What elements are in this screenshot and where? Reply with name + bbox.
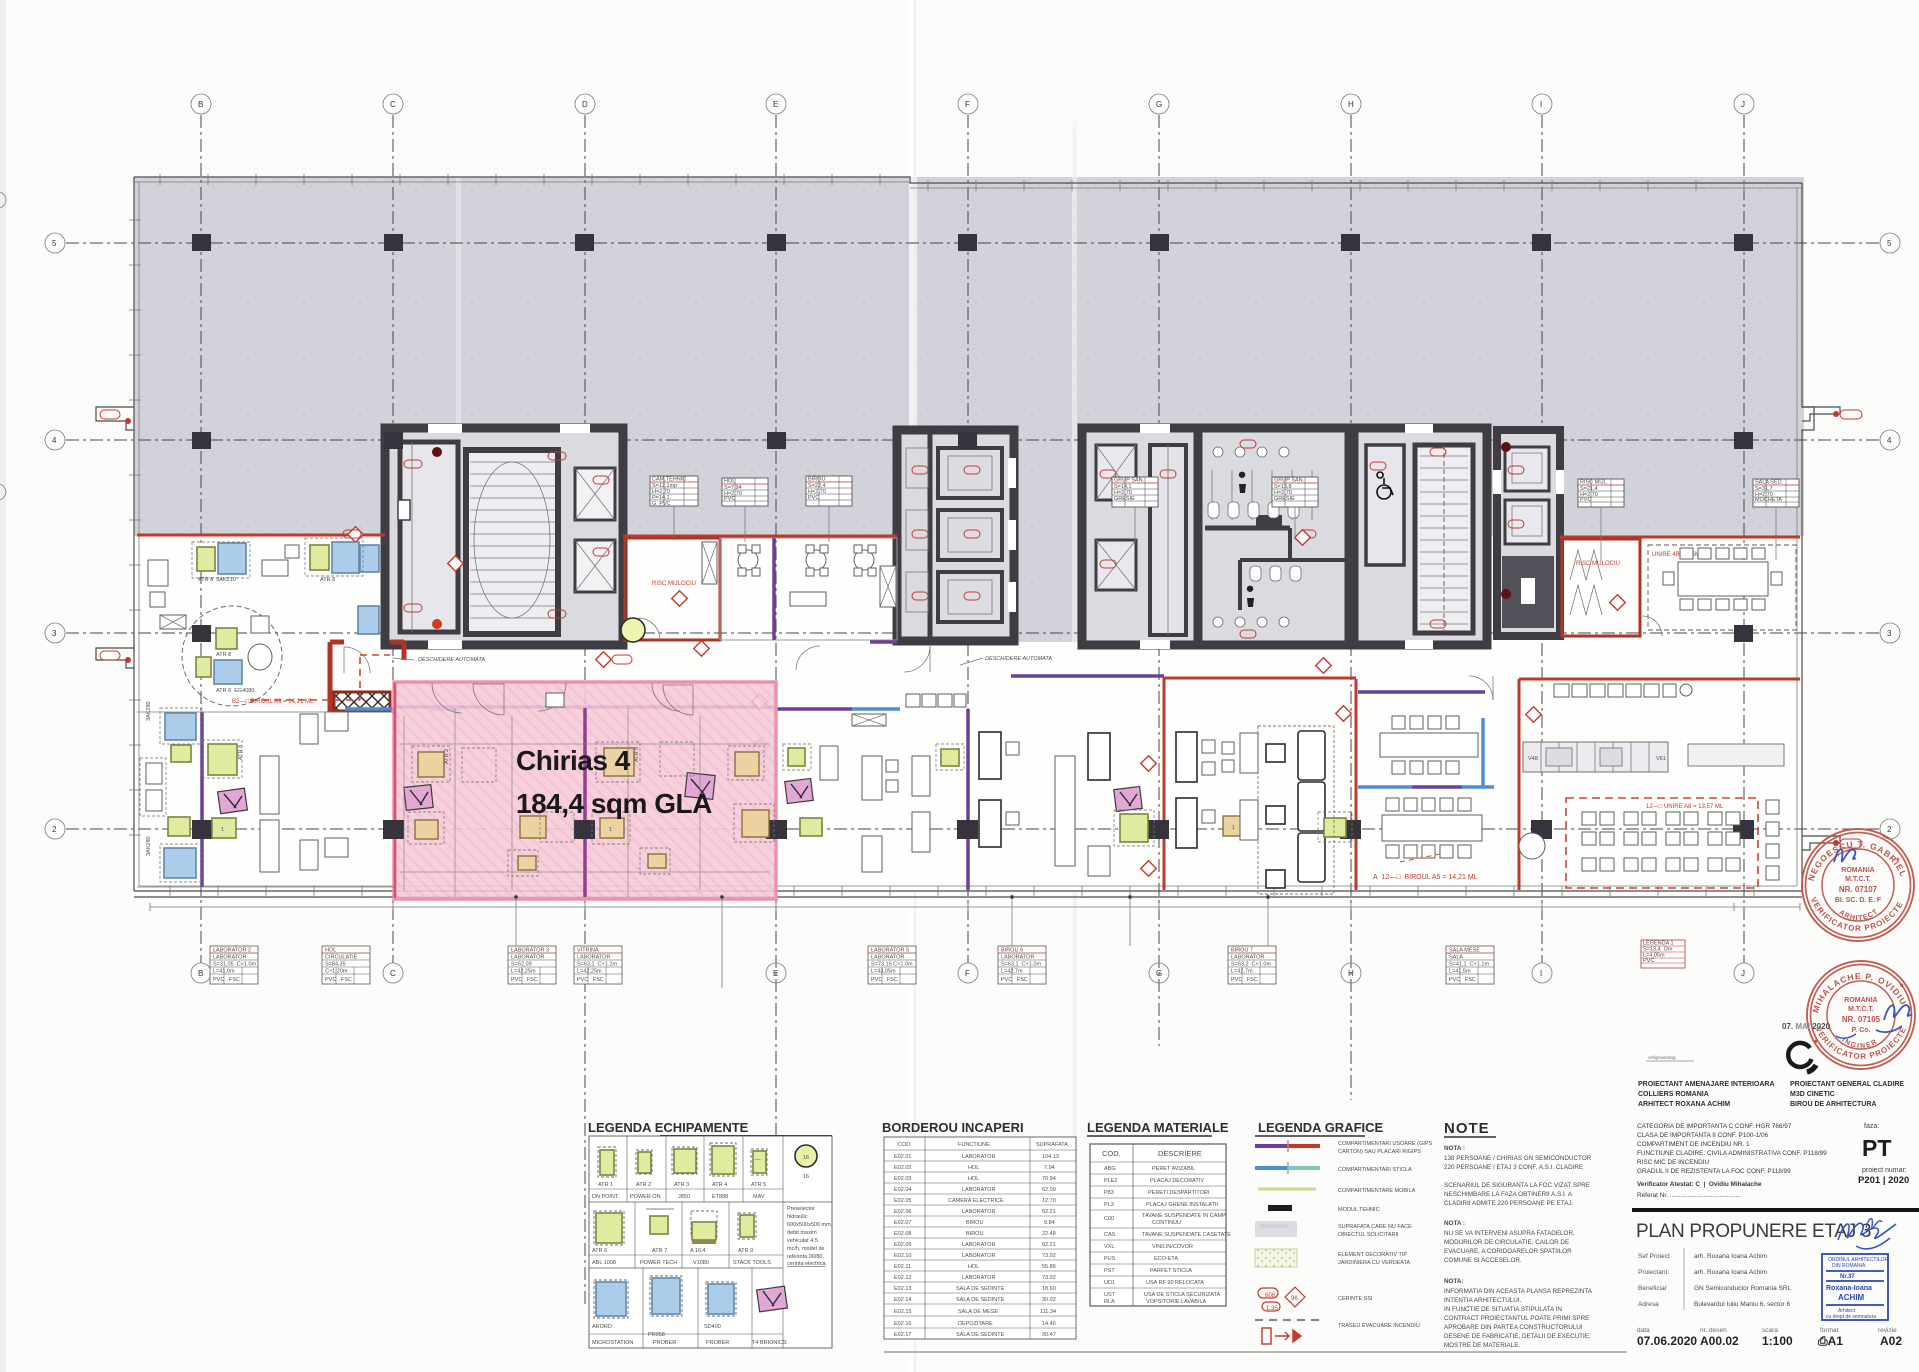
svg-text:NOTE: NOTE bbox=[1444, 1120, 1490, 1137]
svg-text:30.02: 30.02 bbox=[1042, 1297, 1056, 1303]
svg-text:FUNCTIUNE: FUNCTIUNE bbox=[958, 1142, 990, 1148]
svg-text:SALA DE SEDINTE: SALA DE SEDINTE bbox=[956, 1286, 1005, 1292]
svg-text:SCENARIUL DE SIGURANTA LA FOC: SCENARIUL DE SIGURANTA LA FOC VIZAT SPRE bbox=[1444, 1182, 1590, 1189]
svg-text:B: B bbox=[198, 969, 203, 978]
svg-text:MOSTRE DE MATERIALE.: MOSTRE DE MATERIALE. bbox=[1444, 1342, 1520, 1349]
svg-text:INTENTIA ARHITECTULUI.: INTENTIA ARHITECTULUI. bbox=[1444, 1297, 1522, 1304]
svg-text:USA DE STICLA SECURIZATA: USA DE STICLA SECURIZATA bbox=[1144, 1292, 1221, 1298]
svg-text:PROIECTANT AMENAJARE INTERIOAR: PROIECTANT AMENAJARE INTERIOARA bbox=[1638, 1081, 1775, 1088]
svg-text:7.94: 7.94 bbox=[1044, 1165, 1055, 1171]
svg-text:LABORATOR: LABORATOR bbox=[962, 1209, 995, 1215]
svg-text:PVC FSC: PVC FSC bbox=[1449, 977, 1476, 983]
svg-text:debit maxim: debit maxim bbox=[787, 1230, 817, 1236]
svg-text:TRASEU EVACUARE INCENDIU: TRASEU EVACUARE INCENDIU bbox=[1338, 1323, 1420, 1329]
svg-text:PVC FSC: PVC FSC bbox=[213, 977, 240, 983]
svg-text:GRUP SAN.: GRUP SAN. bbox=[1274, 478, 1305, 484]
svg-text:INFORMATIA DIN ACEASTA PLANSA: INFORMATIA DIN ACEASTA PLANSA REPREZINTA bbox=[1444, 1288, 1593, 1295]
svg-text:*: * bbox=[1900, 982, 1904, 992]
svg-text:600x500x500 mm,: 600x500x500 mm, bbox=[787, 1222, 833, 1228]
svg-text:ARORD: ARORD bbox=[592, 1324, 612, 1330]
svg-text:TAVANE SUSPENDATE IN CAMP: TAVANE SUSPENDATE IN CAMP bbox=[1142, 1213, 1226, 1219]
svg-text:PVC: PVC bbox=[808, 495, 819, 501]
svg-text:H: H bbox=[1348, 969, 1354, 978]
svg-text:C: C bbox=[390, 100, 396, 109]
svg-text:ATR 2: ATR 2 bbox=[444, 749, 450, 764]
svg-text:S=63,2 C×1.0m: S=63,2 C×1.0m bbox=[1231, 962, 1271, 968]
svg-text:COD.: COD. bbox=[1102, 1149, 1121, 1158]
svg-text:UST: UST bbox=[1104, 1292, 1116, 1298]
svg-text:E: E bbox=[773, 969, 778, 978]
svg-text:HOL: HOL bbox=[325, 948, 336, 954]
svg-text:MAV: MAV bbox=[753, 1194, 765, 1200]
svg-text:COLLIERS ROMANIA: COLLIERS ROMANIA bbox=[1638, 1091, 1709, 1098]
svg-text:1: 1 bbox=[221, 827, 224, 833]
svg-text:LABORATOR: LABORATOR bbox=[962, 1242, 995, 1248]
svg-text:MICROSTATION: MICROSTATION bbox=[592, 1340, 633, 1346]
svg-text:POWER TECH: POWER TECH bbox=[640, 1260, 677, 1266]
svg-text:ATR 3: ATR 3 bbox=[674, 1182, 689, 1188]
svg-text:PST: PST bbox=[1104, 1268, 1115, 1274]
svg-text:P201 | 2020: P201 | 2020 bbox=[1858, 1175, 1909, 1186]
svg-text:PVC FSC: PVC FSC bbox=[577, 977, 604, 983]
svg-text:arh. Roxana Ioana Achim: arh. Roxana Ioana Achim bbox=[1694, 1269, 1767, 1276]
svg-text:ROMANIA: ROMANIA bbox=[1841, 867, 1874, 874]
svg-text:12—□ UNIRE A8 = 13,57 ML: 12—□ UNIRE A8 = 13,57 ML bbox=[1646, 804, 1724, 810]
svg-text:E02.04: E02.04 bbox=[894, 1187, 911, 1193]
svg-text:1.35: 1.35 bbox=[1266, 1306, 1278, 1312]
svg-text:PROBER: PROBER bbox=[706, 1340, 729, 1346]
svg-text:MODUL TEHNIC: MODUL TEHNIC bbox=[1338, 1207, 1380, 1213]
svg-text:PVC FSC: PVC FSC bbox=[1231, 977, 1258, 983]
svg-text:NR. 07105: NR. 07105 bbox=[1842, 1015, 1881, 1024]
svg-text:GN Semiconductor Romania SRL: GN Semiconductor Romania SRL bbox=[1694, 1285, 1792, 1292]
svg-text:CAM.TEHNIC: CAM.TEHNIC bbox=[652, 477, 686, 483]
svg-text:PERET AVIZABIL: PERET AVIZABIL bbox=[1152, 1166, 1195, 1172]
svg-text:NOTA :: NOTA : bbox=[1444, 1145, 1465, 1152]
svg-text:C00: C00 bbox=[1104, 1216, 1114, 1222]
svg-text:ATR 7: ATR 7 bbox=[652, 1248, 667, 1254]
svg-text:184,4 sqm GLA: 184,4 sqm GLA bbox=[516, 788, 712, 819]
svg-text:1: 1 bbox=[1232, 825, 1235, 831]
svg-text:1:100: 1:100 bbox=[1762, 1334, 1793, 1348]
svg-text:4: 4 bbox=[1887, 436, 1892, 445]
svg-text:M.T.C.T.: M.T.C.T. bbox=[1848, 1006, 1874, 1013]
svg-text:NOTA :: NOTA : bbox=[1444, 1220, 1465, 1227]
svg-text:HOL: HOL bbox=[968, 1165, 979, 1171]
svg-text:hidraulic: hidraulic bbox=[787, 1214, 808, 1220]
svg-text:LABORATOR: LABORATOR bbox=[511, 955, 544, 961]
svg-text:vehiculat 4.5: vehiculat 4.5 bbox=[787, 1238, 818, 1244]
svg-text:CAS: CAS bbox=[1104, 1232, 1116, 1238]
svg-text:220 PERSOANE / ETAJ 3 CONF. A.: 220 PERSOANE / ETAJ 3 CONF. A.S.I. CLADI… bbox=[1444, 1164, 1583, 1171]
svg-text:PUS: PUS bbox=[1104, 1256, 1116, 1262]
svg-text:S=31,05 C×1.0m: S=31,05 C×1.0m bbox=[213, 962, 257, 968]
svg-text:ECO-ETA: ECO-ETA bbox=[1154, 1256, 1178, 1262]
svg-text:MODURILOR DE CIRCULATIE, CAILO: MODURILOR DE CIRCULATIE, CAILOR DE bbox=[1444, 1239, 1569, 1246]
svg-text:E02.15: E02.15 bbox=[894, 1309, 911, 1315]
svg-text:E02.13: E02.13 bbox=[894, 1286, 911, 1292]
svg-text:E02.11: E02.11 bbox=[894, 1264, 911, 1270]
svg-text:LABORATOR: LABORATOR bbox=[213, 955, 246, 961]
svg-text:BIROU 7: BIROU 7 bbox=[1231, 948, 1253, 954]
svg-text:ABL 1008: ABL 1008 bbox=[592, 1260, 616, 1266]
svg-text:L=42,7m: L=42,7m bbox=[1001, 969, 1023, 975]
svg-text:SALA DE SEDINTE: SALA DE SEDINTE bbox=[956, 1297, 1005, 1303]
svg-text:BI. SC. D. E. F: BI. SC. D. E. F bbox=[1835, 897, 1882, 904]
svg-text:DEPOZITARE: DEPOZITARE bbox=[958, 1321, 993, 1327]
svg-text:ATR 9: ATR 9 bbox=[738, 1248, 753, 1254]
svg-text:Roxana-Ioana: Roxana-Ioana bbox=[1826, 1285, 1872, 1292]
svg-text:BORDEROU INCAPERI: BORDEROU INCAPERI bbox=[882, 1120, 1024, 1135]
svg-text:E02.10: E02.10 bbox=[894, 1253, 911, 1259]
svg-text:Sef Proiect: Sef Proiect bbox=[1638, 1253, 1670, 1260]
svg-text:P83: P83 bbox=[1104, 1190, 1114, 1196]
svg-text:5: 5 bbox=[1887, 239, 1892, 248]
svg-text:RLA: RLA bbox=[1104, 1299, 1115, 1305]
svg-text:BIROU 6: BIROU 6 bbox=[1001, 948, 1023, 954]
svg-text:E02.14: E02.14 bbox=[894, 1297, 911, 1303]
svg-text:S=73,15 C×1.0m: S=73,15 C×1.0m bbox=[871, 962, 913, 968]
svg-text:LEGENDA MATERIALE: LEGENDA MATERIALE bbox=[1087, 1120, 1229, 1135]
svg-text:Bulevardul Iuliu Maniu 6, sect: Bulevardul Iuliu Maniu 6, sector 6 bbox=[1694, 1301, 1790, 1308]
svg-text:SALA DE SEDINTE: SALA DE SEDINTE bbox=[956, 1332, 1005, 1338]
svg-text:CATEGORIA DE IMPORTANTA C CONF: CATEGORIA DE IMPORTANTA C CONF. HGR 766/… bbox=[1637, 1123, 1792, 1130]
svg-text:BIROU: BIROU bbox=[966, 1220, 983, 1226]
svg-text:16: 16 bbox=[803, 1155, 809, 1161]
svg-text:UNIRE 4B + 5,5M.: UNIRE 4B + 5,5M. bbox=[1652, 552, 1702, 558]
svg-text:VITRINA: VITRINA bbox=[577, 948, 599, 954]
svg-text:*: * bbox=[1814, 1038, 1818, 1048]
svg-text:E02.06: E02.06 bbox=[894, 1209, 911, 1215]
svg-text:M.T.C.T.: M.T.C.T. bbox=[1845, 876, 1871, 883]
svg-text:S=63,1 C×1.0m: S=63,1 C×1.0m bbox=[1001, 962, 1041, 968]
svg-text:SALA DE MESE: SALA DE MESE bbox=[958, 1309, 998, 1315]
svg-text:18.60: 18.60 bbox=[1042, 1286, 1056, 1292]
svg-text:G PVC: G PVC bbox=[652, 501, 671, 507]
svg-text:nr. desen: nr. desen bbox=[1700, 1327, 1727, 1334]
svg-text:L=42,25m: L=42,25m bbox=[511, 969, 536, 975]
svg-text:608: 608 bbox=[1265, 1293, 1276, 1299]
svg-text:GRUP SAN.: GRUP SAN. bbox=[1114, 478, 1145, 484]
svg-text:SALA MESE: SALA MESE bbox=[1449, 948, 1480, 954]
svg-text:4: 4 bbox=[52, 436, 57, 445]
svg-text:VINILIN/COVOR: VINILIN/COVOR bbox=[1152, 1244, 1193, 1250]
svg-text:cu drept de semnatura: cu drept de semnatura bbox=[1826, 1314, 1876, 1320]
svg-text:ATR 2: ATR 2 bbox=[636, 1182, 651, 1188]
svg-text:BIROU: BIROU bbox=[966, 1231, 983, 1237]
svg-text:ET888: ET888 bbox=[712, 1194, 728, 1200]
svg-text:PROIECTANT GENERAL CLADIRE: PROIECTANT GENERAL CLADIRE bbox=[1790, 1081, 1904, 1088]
svg-text:PVC FSC: PVC FSC bbox=[871, 977, 898, 983]
svg-text:NU SE VA INTERVENI ASUPRA FATA: NU SE VA INTERVENI ASUPRA FATADELOR, bbox=[1444, 1230, 1575, 1237]
svg-text:NESCHIMBARE LA FAZA OBTINERII: NESCHIMBARE LA FAZA OBTINERII A.S.I. A bbox=[1444, 1191, 1573, 1198]
svg-text:V48: V48 bbox=[1528, 756, 1538, 762]
svg-text:IN FUNCTIE DE SITUATIA STIPULA: IN FUNCTIE DE SITUATIA STIPULATA IN bbox=[1444, 1306, 1562, 1313]
svg-text:SALA: SALA bbox=[1449, 955, 1463, 961]
svg-text:UD1: UD1 bbox=[1104, 1280, 1115, 1286]
svg-text:SUPRAFATA: SUPRAFATA bbox=[1036, 1142, 1068, 1148]
svg-text:PLACAJ DECORATIV: PLACAJ DECORATIV bbox=[1150, 1178, 1204, 1184]
svg-text:LABORATOR 2: LABORATOR 2 bbox=[213, 948, 251, 954]
svg-text:ATR 8: ATR 8 bbox=[634, 747, 640, 762]
svg-text:L=43,05m: L=43,05m bbox=[871, 969, 896, 975]
svg-text:LABORATOR: LABORATOR bbox=[871, 955, 904, 961]
svg-text:ARHITECT ROXANA ACHIM: ARHITECT ROXANA ACHIM bbox=[1638, 1101, 1730, 1108]
svg-text:DESCHIDERE AUTOMATA: DESCHIDERE AUTOMATA bbox=[985, 656, 1052, 662]
svg-text:TAVANE SUSPENDATE CASETATE: TAVANE SUSPENDATE CASETATE bbox=[1142, 1232, 1231, 1238]
svg-text:J: J bbox=[1741, 969, 1745, 978]
svg-text:I: I bbox=[1540, 100, 1542, 109]
svg-text:Proiectant:: Proiectant: bbox=[1638, 1269, 1669, 1276]
svg-text:Referat Nr. ..................: Referat Nr. ............................… bbox=[1637, 1192, 1741, 1199]
svg-text:USA RF 90 RELOCATA: USA RF 90 RELOCATA bbox=[1146, 1280, 1204, 1286]
svg-text:L=41,5m: L=41,5m bbox=[1449, 969, 1471, 975]
svg-text:A 16.4: A 16.4 bbox=[690, 1248, 706, 1254]
svg-text:M3D CINETIC: M3D CINETIC bbox=[1790, 1091, 1835, 1098]
svg-text:MOCHETA: MOCHETA bbox=[1755, 497, 1782, 503]
svg-text:LEGENDA ECHIPAMENTE: LEGENDA ECHIPAMENTE bbox=[588, 1120, 749, 1135]
svg-text:62.09: 62.09 bbox=[1042, 1187, 1056, 1193]
svg-text:EVACUARE, A CORIDOARELOR SPATI: EVACUARE, A CORIDOARELOR SPATIILOR bbox=[1444, 1248, 1572, 1255]
svg-text:LABORATOR: LABORATOR bbox=[962, 1253, 995, 1259]
svg-text:73.92: 73.92 bbox=[1042, 1275, 1056, 1281]
svg-text:FUNCTIUNE CLADIRE: CIVILA ADMI: FUNCTIUNE CLADIRE: CIVILA ADMINISTRATIVA… bbox=[1637, 1150, 1827, 1157]
svg-text:L=42,7m: L=42,7m bbox=[1231, 969, 1253, 975]
svg-text:OBIECTUL SOLICITARII: OBIECTUL SOLICITARII bbox=[1338, 1232, 1399, 1238]
svg-text:9.84: 9.84 bbox=[1044, 1220, 1055, 1226]
svg-text:70.94: 70.94 bbox=[1042, 1176, 1056, 1182]
svg-text:2: 2 bbox=[1887, 825, 1892, 834]
svg-text:ATR 5: ATR 5 bbox=[751, 1182, 766, 1188]
svg-text:Verificator Atestat: C | Ovi: Verificator Atestat: C | Ovidiu Mihalach… bbox=[1637, 1181, 1762, 1188]
svg-text:G: G bbox=[1156, 969, 1162, 978]
svg-text:E02.01: E02.01 bbox=[894, 1154, 911, 1160]
svg-text:scara: scara bbox=[1762, 1327, 1778, 1334]
svg-text:LABORATOR: LABORATOR bbox=[1231, 955, 1264, 961]
svg-text:C×1.20m: C×1.20m bbox=[325, 969, 348, 975]
svg-text:07. MAI 2020: 07. MAI 2020 bbox=[1782, 1022, 1831, 1031]
svg-text:POWER ON: POWER ON bbox=[630, 1194, 661, 1200]
svg-text:VOPSITORIE LAVABILA: VOPSITORIE LAVABILA bbox=[1146, 1299, 1207, 1305]
svg-text:B: B bbox=[198, 100, 203, 109]
svg-text:E02.12: E02.12 bbox=[894, 1275, 911, 1281]
svg-text:CONTRACT PROIECTANTUL POATE PR: CONTRACT PROIECTANTUL POATE PRIMI SPRE bbox=[1444, 1315, 1589, 1322]
svg-text:cerinta electrica: cerinta electrica bbox=[787, 1261, 826, 1267]
svg-text:HOL: HOL bbox=[724, 479, 735, 485]
svg-text:arh. Roxana Ioana Achim: arh. Roxana Ioana Achim bbox=[1694, 1253, 1767, 1260]
svg-text:V61: V61 bbox=[1656, 756, 1666, 762]
svg-text:⎙A1: ⎙A1 bbox=[1817, 1334, 1843, 1348]
svg-text:S=84,35: S=84,35 bbox=[325, 962, 346, 968]
svg-text:E02.17: E02.17 bbox=[894, 1332, 911, 1338]
svg-text:*: * bbox=[1896, 856, 1900, 866]
svg-text:T4 BRIONICS: T4 BRIONICS bbox=[752, 1340, 787, 1346]
svg-text:E02.03: E02.03 bbox=[894, 1176, 911, 1182]
svg-text:3: 3 bbox=[52, 629, 57, 638]
svg-text:ATR 6 EG4080: ATR 6 EG4080 bbox=[216, 688, 254, 694]
svg-text:H: H bbox=[1348, 100, 1354, 109]
svg-text:E02.02: E02.02 bbox=[894, 1165, 911, 1171]
svg-text:PL3: PL3 bbox=[1104, 1202, 1114, 1208]
svg-text:—: — bbox=[755, 1157, 761, 1163]
svg-text:LABORATOR: LABORATOR bbox=[1001, 955, 1034, 961]
svg-text:14.46: 14.46 bbox=[1042, 1321, 1056, 1327]
svg-text:CONTINUU: CONTINUU bbox=[1152, 1220, 1181, 1226]
svg-text:F: F bbox=[965, 969, 970, 978]
svg-text:P. Co.: P. Co. bbox=[1852, 1027, 1871, 1034]
svg-text:L=41,0m: L=41,0m bbox=[213, 969, 235, 975]
svg-text:73.92: 73.92 bbox=[1042, 1253, 1056, 1259]
svg-text:12.70: 12.70 bbox=[1042, 1198, 1056, 1204]
svg-text:ATR 1: ATR 1 bbox=[598, 1182, 613, 1188]
svg-text:PLAN PROPUNERE ETAJ 3: PLAN PROPUNERE ETAJ 3 bbox=[1636, 1221, 1871, 1242]
svg-text:138 PERSOANE / CHIRIAS GN SEMI: 138 PERSOANE / CHIRIAS GN SEMICONDUCTOR bbox=[1444, 1155, 1592, 1162]
svg-text:RISC MIJL.: RISC MIJL. bbox=[1580, 480, 1609, 486]
svg-text:CARTON) SAU PLACARI RIGIPS: CARTON) SAU PLACARI RIGIPS bbox=[1338, 1149, 1421, 1155]
svg-text:CLADIRII ADMITE 220 PERSOANE P: CLADIRII ADMITE 220 PERSOANE PE ETAJ. bbox=[1444, 1200, 1574, 1207]
svg-text:GRESIE: GRESIE bbox=[1114, 496, 1135, 502]
svg-text:PLACAJ GHENE INSTALATII: PLACAJ GHENE INSTALATII bbox=[1146, 1202, 1218, 1208]
svg-text:GRADUL II DE REZISTENTA LA FOC: GRADUL II DE REZISTENTA LA FOC CONF. P11… bbox=[1637, 1168, 1791, 1175]
svg-text:COMPARTIMENTARI USOARE (GIPS: COMPARTIMENTARI USOARE (GIPS bbox=[1338, 1141, 1432, 1147]
svg-text:HOL: HOL bbox=[968, 1176, 979, 1182]
svg-text:LABORATOR 5: LABORATOR 5 bbox=[871, 948, 909, 954]
svg-text:Chirias 4: Chirias 4 bbox=[516, 745, 631, 776]
svg-text:30.47: 30.47 bbox=[1042, 1332, 1056, 1338]
svg-text:mc/h, model de: mc/h, model de bbox=[787, 1246, 825, 1252]
svg-text:PVC FSC: PVC FSC bbox=[1001, 977, 1028, 983]
svg-text:format: format bbox=[1820, 1327, 1839, 1334]
svg-text:STACK TOOLS: STACK TOOLS bbox=[733, 1260, 771, 1266]
svg-text:PR058: PR058 bbox=[648, 1332, 665, 1338]
svg-text:RISC MIJLOCIU: RISC MIJLOCIU bbox=[652, 581, 696, 587]
svg-text:A 12—□ BIROUL A5 = 14,21 ML: A 12—□ BIROUL A5 = 14,21 ML bbox=[1373, 874, 1478, 881]
svg-text:NR. 07107: NR. 07107 bbox=[1839, 885, 1878, 894]
svg-text:LABORATOR: LABORATOR bbox=[962, 1275, 995, 1281]
svg-text:C: C bbox=[390, 969, 396, 978]
svg-text:SD400: SD400 bbox=[704, 1324, 721, 1330]
svg-text:SALA SED.: SALA SED. bbox=[1755, 480, 1784, 486]
svg-text:LABORATOR: LABORATOR bbox=[962, 1187, 995, 1193]
svg-text:ATR 8: ATR 8 bbox=[216, 652, 231, 658]
svg-text:104.13: 104.13 bbox=[1042, 1154, 1059, 1160]
svg-text:CIRCULATIE: CIRCULATIE bbox=[325, 955, 358, 961]
svg-text:CLASA DE IMPORTANTA II CONF. P: CLASA DE IMPORTANTA II CONF. P100-1/06 bbox=[1637, 1132, 1768, 1139]
svg-text:L=42,25m: L=42,25m bbox=[577, 969, 602, 975]
svg-text:JARDINIERA CU VERDEATA: JARDINIERA CU VERDEATA bbox=[1338, 1260, 1411, 1266]
svg-text:PVC: PVC bbox=[1643, 958, 1654, 964]
svg-text:96: 96 bbox=[1291, 1296, 1298, 1302]
svg-text:DN POINT: DN POINT bbox=[592, 1194, 619, 1200]
svg-text:E02.05: E02.05 bbox=[894, 1198, 911, 1204]
svg-text:62.21: 62.21 bbox=[1042, 1209, 1056, 1215]
svg-text:3: 3 bbox=[1887, 629, 1892, 638]
svg-text:3AK280: 3AK280 bbox=[146, 701, 152, 721]
svg-text:2: 2 bbox=[52, 825, 57, 834]
svg-text:E02.16: E02.16 bbox=[894, 1321, 911, 1327]
svg-text:NOTA:: NOTA: bbox=[1444, 1278, 1463, 1285]
svg-text:E02.08: E02.08 bbox=[894, 1231, 911, 1237]
svg-text:PROBER: PROBER bbox=[653, 1340, 676, 1346]
svg-text:V1080: V1080 bbox=[693, 1260, 709, 1266]
svg-text:A00.02: A00.02 bbox=[1700, 1334, 1739, 1348]
svg-text:GRESIE: GRESIE bbox=[1274, 496, 1295, 502]
svg-text:5: 5 bbox=[52, 239, 57, 248]
svg-text:data: data bbox=[1637, 1327, 1650, 1334]
svg-text:I: I bbox=[1540, 969, 1542, 978]
svg-text:LABORATOR: LABORATOR bbox=[962, 1154, 995, 1160]
svg-text:PVC: PVC bbox=[724, 496, 735, 502]
svg-text:07.06.2020: 07.06.2020 bbox=[1637, 1334, 1697, 1348]
svg-text:16: 16 bbox=[803, 1174, 809, 1180]
svg-text:ATR 8: ATR 8 bbox=[238, 745, 244, 760]
svg-text:E02.09: E02.09 bbox=[894, 1242, 911, 1248]
svg-text:A02: A02 bbox=[1880, 1334, 1902, 1348]
svg-text:Beneficiar: Beneficiar bbox=[1638, 1285, 1668, 1292]
svg-text:Adresa: Adresa bbox=[1638, 1301, 1659, 1308]
svg-text:S=62,09: S=62,09 bbox=[511, 962, 532, 968]
svg-text:COMPARTIMENTARE MOBILA: COMPARTIMENTARE MOBILA bbox=[1338, 1188, 1416, 1194]
svg-text:DESCRIERE: DESCRIERE bbox=[1158, 1149, 1202, 1158]
svg-text:S=41,1 C×1.1m: S=41,1 C×1.1m bbox=[1449, 962, 1489, 968]
svg-text:DIN ROMANIA: DIN ROMANIA bbox=[1832, 1263, 1866, 1269]
svg-text:S=62,1 C×1.2m: S=62,1 C×1.2m bbox=[577, 962, 617, 968]
svg-text:G: G bbox=[1156, 100, 1162, 109]
svg-text:revizie: revizie bbox=[1878, 1327, 1897, 1334]
svg-text:SUPRAFATA CARE NU FACE: SUPRAFATA CARE NU FACE bbox=[1338, 1224, 1412, 1230]
svg-text:APROBARE DIN PARTEA CONSTRUCTO: APROBARE DIN PARTEA CONSTRUCTORULUI bbox=[1444, 1324, 1583, 1331]
svg-text:COD: COD bbox=[898, 1142, 910, 1148]
svg-text:PVC FSC: PVC FSC bbox=[325, 977, 352, 983]
svg-text:referinta 00/80,: referinta 00/80, bbox=[787, 1254, 824, 1260]
svg-text:J850: J850 bbox=[678, 1194, 690, 1200]
svg-text:ATR 8: ATR 8 bbox=[320, 577, 335, 583]
svg-text:Preselector: Preselector bbox=[787, 1206, 815, 1212]
svg-text:Nr.37: Nr.37 bbox=[1840, 1274, 1855, 1280]
svg-text:E: E bbox=[773, 100, 778, 109]
svg-text:HOL: HOL bbox=[968, 1264, 979, 1270]
svg-text:Arhiproiecting: Arhiproiecting bbox=[1648, 1055, 1676, 1060]
svg-text:RISC MIC DE INCENDIU: RISC MIC DE INCENDIU bbox=[1637, 1159, 1709, 1166]
svg-text:1: 1 bbox=[609, 827, 612, 833]
svg-text:55.86: 55.86 bbox=[1042, 1264, 1056, 1270]
svg-text:E02.07: E02.07 bbox=[894, 1220, 911, 1226]
svg-text:ACHIM: ACHIM bbox=[1838, 1293, 1865, 1302]
svg-text:LABORATOR 3: LABORATOR 3 bbox=[511, 948, 549, 954]
svg-text:J: J bbox=[1741, 100, 1745, 109]
svg-text:PVC: PVC bbox=[1580, 497, 1591, 503]
svg-text:LABORATOR: LABORATOR bbox=[577, 955, 610, 961]
svg-text:CERINTE SSI: CERINTE SSI bbox=[1338, 1296, 1373, 1302]
svg-text:VXL: VXL bbox=[1104, 1244, 1114, 1250]
svg-text:22.48: 22.48 bbox=[1042, 1231, 1056, 1237]
svg-text:BIROU: BIROU bbox=[808, 477, 825, 483]
svg-text:3AK280: 3AK280 bbox=[146, 836, 152, 856]
svg-text:PLE2: PLE2 bbox=[1104, 1178, 1117, 1184]
svg-text:CAMERA ELECTRICE: CAMERA ELECTRICE bbox=[948, 1198, 1004, 1204]
svg-text:ABG: ABG bbox=[1104, 1166, 1116, 1172]
svg-text:DESCHIDERE AUTOMATA: DESCHIDERE AUTOMATA bbox=[418, 657, 485, 663]
svg-text:PARFET STICLA: PARFET STICLA bbox=[1150, 1268, 1192, 1274]
svg-text:F: F bbox=[965, 100, 970, 109]
svg-text:PVC FSC: PVC FSC bbox=[511, 977, 538, 983]
svg-text:proiect numar:: proiect numar: bbox=[1862, 1167, 1907, 1174]
svg-text:COMPARTIMENTARI STICLA: COMPARTIMENTARI STICLA bbox=[1338, 1167, 1412, 1173]
svg-text:62.21: 62.21 bbox=[1042, 1242, 1056, 1248]
svg-text:ATR 6: ATR 6 bbox=[592, 1248, 607, 1254]
svg-text:ELEMENT DECORATIV TIP: ELEMENT DECORATIV TIP bbox=[1338, 1252, 1407, 1258]
svg-text:COMPARTIMENT DE INCENDIU NR. 1: COMPARTIMENT DE INCENDIU NR. 1 bbox=[1637, 1141, 1750, 1148]
